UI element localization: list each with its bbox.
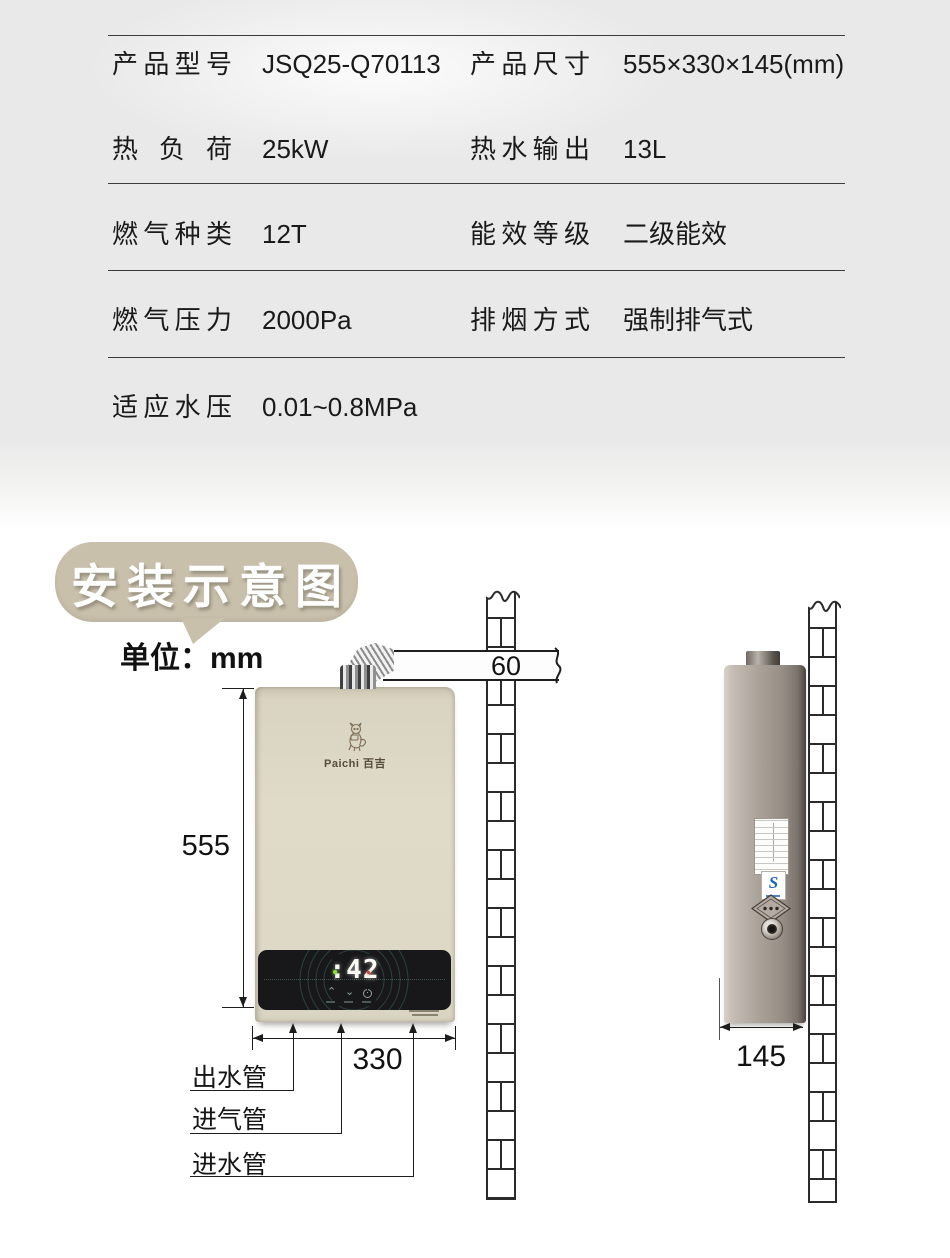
wall-break-icon — [808, 599, 841, 623]
depth-dim-line — [720, 1027, 803, 1028]
section-title-bubble: 安装示意图 — [55, 542, 358, 622]
spec-row: 燃气压力 2000Pa 排烟方式 强制排气式 — [108, 304, 868, 338]
spec-label: 适应水压 — [112, 391, 232, 423]
spec-label: 燃气压力 — [112, 304, 232, 336]
display-dot — [368, 978, 370, 980]
fine-print — [412, 1014, 438, 1016]
spec-label: 产品尺寸 — [470, 48, 590, 80]
table-divider — [108, 183, 845, 184]
power-icon — [363, 989, 372, 998]
label-sticker — [754, 818, 789, 875]
dim-tick — [222, 1007, 254, 1008]
duct-dimension: 60 — [478, 651, 534, 682]
spec-value: 二级能效 — [623, 218, 727, 250]
arrow-icon — [793, 1023, 803, 1031]
button-caption — [344, 1001, 353, 1003]
height-dim-line — [243, 689, 244, 1007]
fine-print — [409, 1010, 439, 1012]
duct-break-icon — [551, 647, 565, 684]
dim-tick — [222, 688, 254, 689]
display-dot — [334, 978, 336, 980]
spec-row: 适应水压 0.01~0.8MPa — [108, 391, 868, 425]
status-dot-green — [333, 970, 337, 974]
temperature-display: :42 — [258, 955, 451, 985]
arrow-icon — [445, 1034, 455, 1042]
width-dim-line — [253, 1038, 455, 1039]
spec-label: 燃气种类 — [112, 218, 232, 250]
spec-label: 热负荷 — [112, 133, 232, 165]
depth-dimension: 145 — [722, 1040, 800, 1074]
display-panel: :42 ⌃ ⌄ — [258, 950, 451, 1010]
mascot-icon — [338, 722, 372, 754]
spec-row: 产品型号 JSQ25-Q70113 产品尺寸 555×330×145(mm) — [108, 48, 868, 82]
page-background: 产品型号 JSQ25-Q70113 产品尺寸 555×330×145(mm) 热… — [0, 0, 950, 1258]
spec-label: 产品型号 — [112, 48, 232, 80]
arrow-icon — [239, 997, 247, 1007]
arrow-icon — [253, 1034, 263, 1042]
width-dimension: 330 — [340, 1043, 415, 1077]
brick-wall-side — [808, 600, 837, 1203]
spec-value: 555×330×145(mm) — [623, 48, 844, 80]
dim-tick — [455, 1026, 456, 1050]
spec-label: 排烟方式 — [470, 304, 590, 336]
spec-row: 热负荷 25kW 热水输出 13L — [108, 133, 868, 167]
wall-break-icon — [486, 589, 520, 613]
pipe-label-outlet: 出水管 — [192, 1058, 267, 1094]
spec-value: 2000Pa — [262, 304, 352, 336]
table-divider — [108, 35, 845, 36]
spec-value: 强制排气式 — [623, 304, 753, 336]
valve-knob — [761, 918, 783, 940]
brand-name: Paichi 百吉 — [305, 755, 405, 771]
status-dot-red — [367, 971, 370, 974]
arrow-icon — [239, 689, 247, 699]
exhaust-stub-side — [746, 651, 780, 666]
temp-down-icon: ⌄ — [345, 987, 354, 997]
spec-row: 燃气种类 12T 能效等级 二级能效 — [108, 218, 868, 252]
pipe-line — [293, 1031, 294, 1090]
spec-value: 25kW — [262, 133, 328, 165]
pipe-label-inlet: 进水管 — [192, 1145, 267, 1181]
spec-value: 13L — [623, 133, 666, 165]
temp-up-icon: ⌃ — [327, 987, 336, 997]
spec-label: 热水输出 — [470, 133, 590, 165]
spec-label: 能效等级 — [470, 218, 590, 250]
unit-label: 单位：mm — [120, 633, 263, 677]
arrow-icon — [720, 1023, 730, 1031]
spec-value: 12T — [262, 218, 307, 250]
height-dimension: 555 — [170, 830, 230, 863]
pipe-label-gas: 进气管 — [192, 1100, 267, 1136]
brand-logo: Paichi 百吉 — [305, 722, 405, 771]
spec-value: 0.01~0.8MPa — [262, 391, 417, 423]
table-divider — [108, 270, 845, 271]
section-title: 安装示意图 — [62, 548, 351, 617]
button-caption — [362, 1001, 371, 1003]
table-divider — [108, 357, 845, 358]
spec-value: JSQ25-Q70113 — [262, 48, 441, 80]
button-caption — [326, 1001, 335, 1003]
exhaust-stub — [340, 665, 376, 689]
